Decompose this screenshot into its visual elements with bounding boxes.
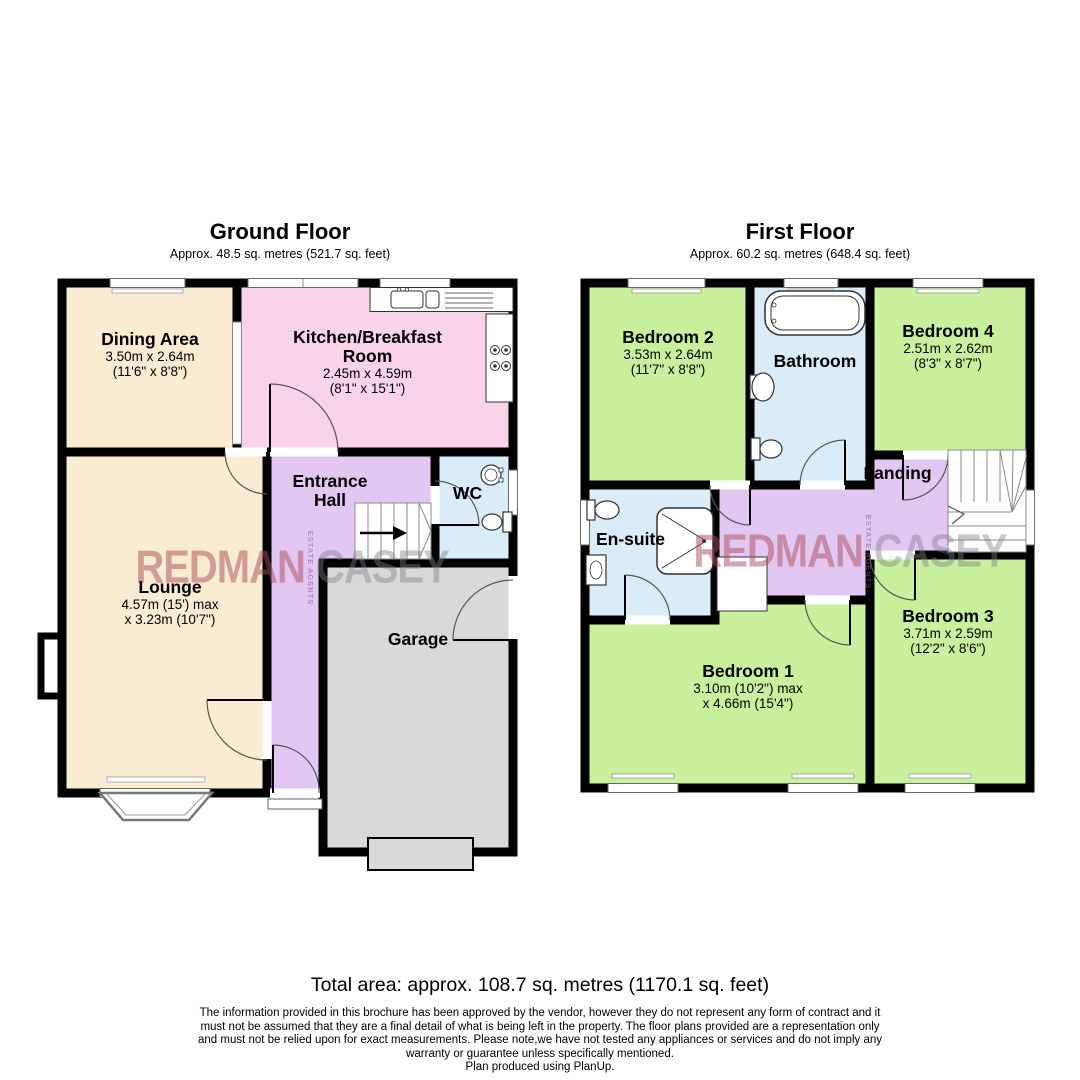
room-label-dining: Dining Area 3.50m x 2.64m (11'6" x 8'8") [85,330,215,380]
total-area-text: Total area: approx. 108.7 sq. metres (11… [0,974,1080,997]
toilet-icon [587,500,619,520]
room-label-bedroom4: Bedroom 4 2.51m x 2.62m (8'3" x 8'7") [868,322,1028,372]
first-floor-title: First Floor Approx. 60.2 sq. metres (648… [560,220,1040,261]
ground-floor-title-text: Ground Floor [35,220,525,244]
stairs-icon [948,450,1026,552]
room-bedroom3-fill [870,555,1030,788]
front-step [268,799,322,809]
sink-icon [750,373,774,401]
room-bedroom2-fill [585,283,750,485]
stairs-icon [355,503,431,559]
sliding-door [233,322,242,444]
room-label-hall: Entrance Hall [280,472,380,510]
room-label-ensuite: En-suite [578,530,683,549]
disclaimer-line: The information provided in this brochur… [0,1007,1080,1021]
room-label-lounge: Lounge 4.57m (15') max x 3.23m (10'7") [90,578,250,628]
garage-door [368,838,473,870]
room-label-bedroom2: Bedroom 2 3.53m x 2.64m (11'7" x 8'8") [588,328,748,378]
first-floor-title-text: First Floor [560,220,1040,244]
sink-icon [586,555,606,585]
ground-floor-subtitle: Approx. 48.5 sq. metres (521.7 sq. feet) [35,247,525,261]
room-label-landing: Landing [840,464,955,483]
room-label-kitchen: Kitchen/Breakfast Room 2.45m x 4.59m (8'… [275,328,460,397]
ground-floor-title: Ground Floor Approx. 48.5 sq. metres (52… [35,220,525,261]
room-label-bedroom1: Bedroom 1 3.10m (10'2") max x 4.66m (15'… [668,662,828,712]
room-label-bathroom: Bathroom [757,352,873,371]
bath-icon [765,291,865,335]
bay-window [100,793,212,820]
room-label-bedroom3: Bedroom 3 3.71m x 2.59m (12'2" x 8'6") [868,607,1028,657]
disclaimer-line: warranty or guarantee unless specificall… [0,1048,1080,1062]
room-label-wc: WC [440,484,495,503]
disclaimer-line: must not be assumed that they are a fina… [0,1021,1080,1035]
room-label-garage: Garage [353,630,483,649]
room-garage-fill [323,563,513,852]
disclaimer-line: and must not be relied upon for exact me… [0,1034,1080,1048]
first-floor-plan: Bedroom 2 3.53m x 2.64m (11'7" x 8'8") B… [560,272,1040,812]
disclaimer: The information provided in this brochur… [0,1007,1080,1075]
first-floor-subtitle: Approx. 60.2 sq. metres (648.4 sq. feet) [560,247,1040,261]
ground-floor-plan: Dining Area 3.50m x 2.64m (11'6" x 8'8")… [35,272,525,872]
toilet-icon [751,438,782,460]
disclaimer-line: Plan produced using PlanUp. [0,1061,1080,1075]
toilet-icon [482,512,512,532]
sink-icon [481,465,503,485]
cupboard [717,557,767,611]
chimney-breast [41,636,61,696]
